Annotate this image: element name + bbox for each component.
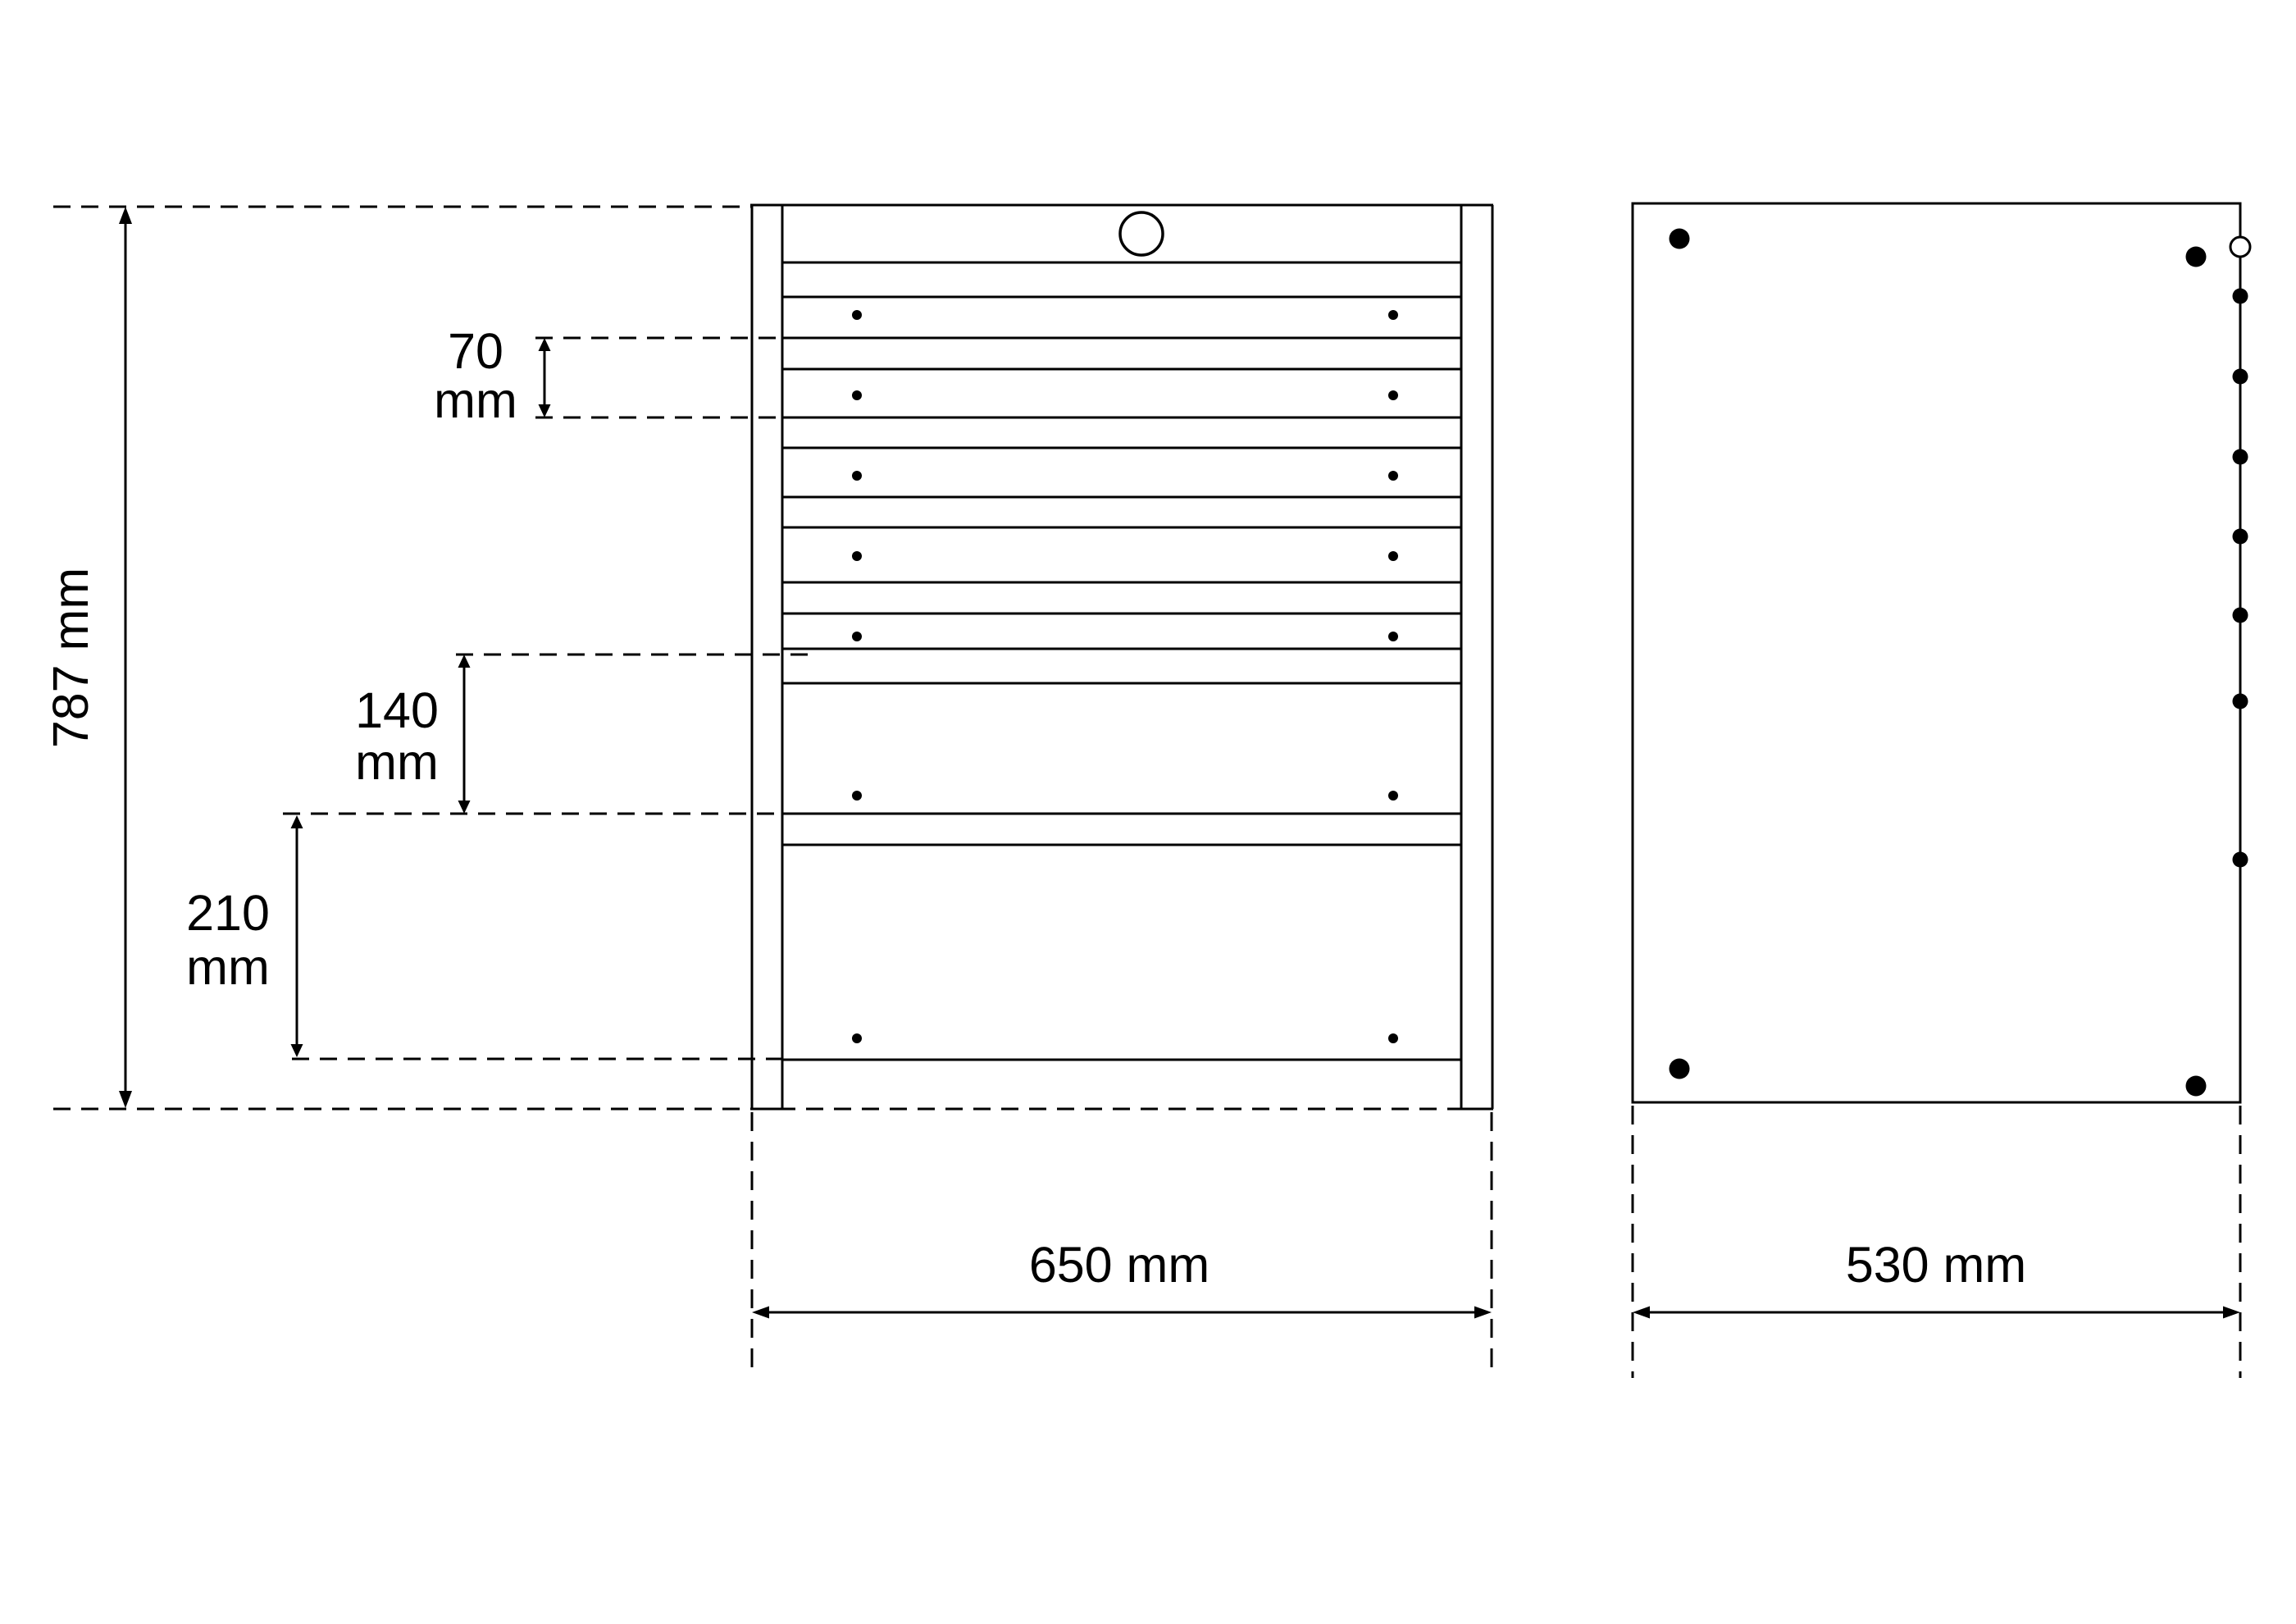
svg-text:530 mm: 530 mm	[1846, 1237, 2026, 1293]
svg-text:mm: mm	[186, 939, 270, 995]
svg-text:70: 70	[448, 323, 503, 379]
svg-text:787 mm: 787 mm	[43, 568, 98, 748]
svg-text:650 mm: 650 mm	[1029, 1237, 1209, 1293]
svg-text:140: 140	[355, 682, 439, 738]
svg-text:mm: mm	[434, 372, 517, 428]
svg-text:210: 210	[186, 885, 270, 941]
svg-text:mm: mm	[355, 734, 439, 790]
